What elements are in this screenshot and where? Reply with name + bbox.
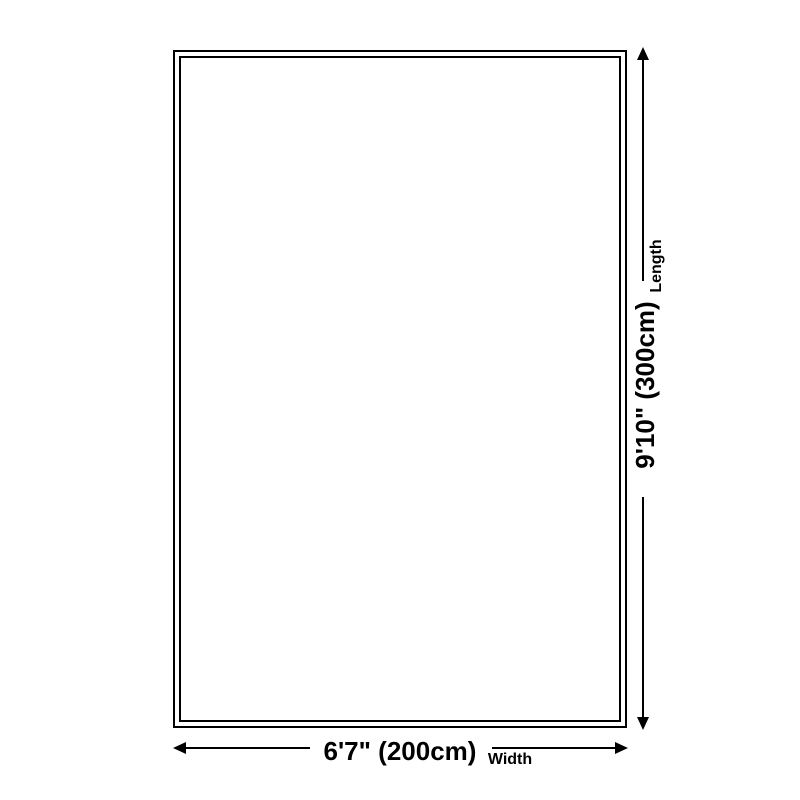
- length-arrow-top-segment: [642, 58, 644, 281]
- length-arrow-bottom-segment: [642, 497, 644, 719]
- rug-outline: [173, 50, 627, 728]
- width-arrow-right-segment: [492, 747, 617, 749]
- width-value-label: 6'7" (200cm): [290, 735, 510, 767]
- arrow-down-icon: [637, 717, 649, 730]
- width-axis-label: Width: [480, 751, 540, 769]
- rug-outline-inner-border: [179, 56, 621, 722]
- length-axis-label: Length: [648, 239, 666, 293]
- length-value-label: 9'10" (300cm): [629, 300, 661, 470]
- arrow-right-icon: [615, 742, 628, 754]
- rug-size-diagram: Length 9'10" (300cm) 6'7" (200cm) Width: [0, 0, 800, 800]
